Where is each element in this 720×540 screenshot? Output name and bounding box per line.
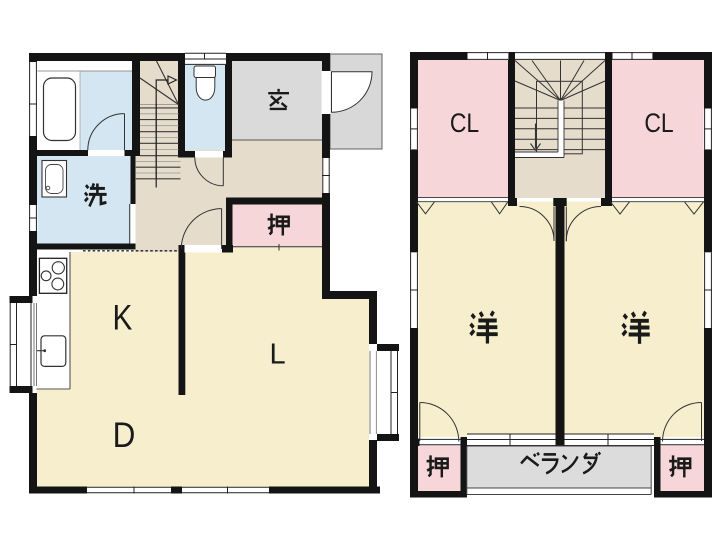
svg-text:D: D bbox=[113, 417, 136, 456]
svg-text:K: K bbox=[112, 298, 132, 337]
svg-text:L: L bbox=[269, 339, 285, 371]
svg-text:CL: CL bbox=[450, 108, 479, 138]
svg-text:CL: CL bbox=[644, 108, 673, 138]
